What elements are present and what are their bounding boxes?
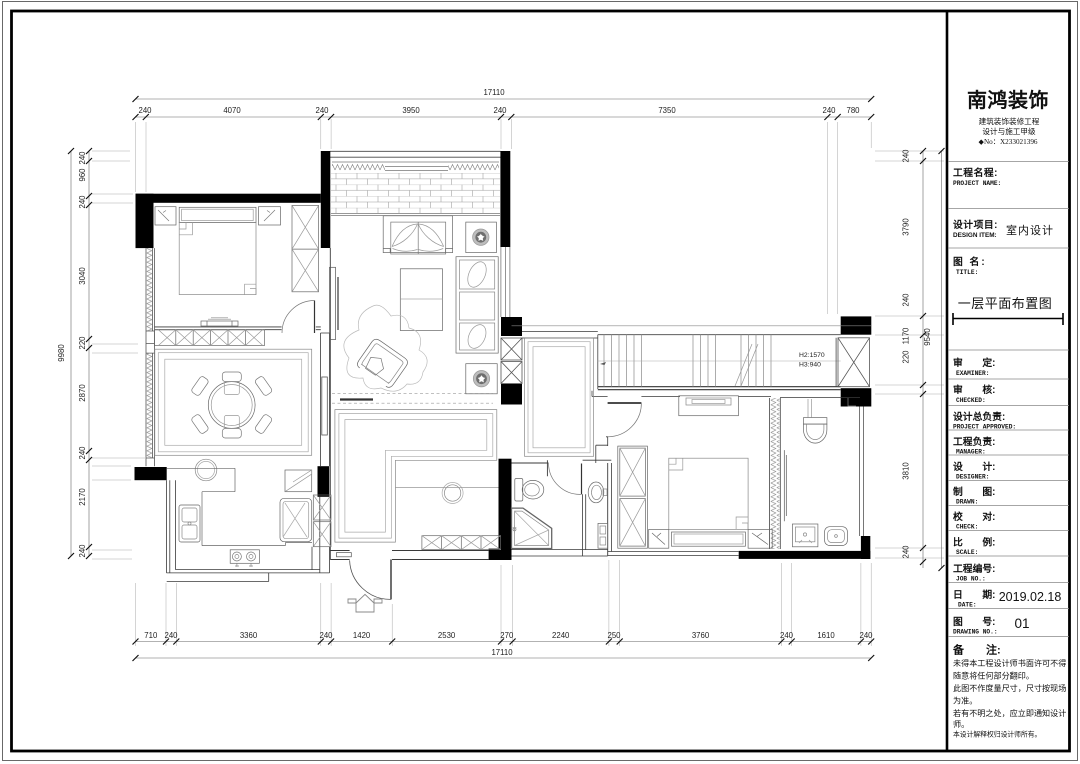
svg-text:220: 220: [902, 350, 911, 364]
svg-text:17110: 17110: [491, 648, 513, 657]
svg-text:240: 240: [315, 106, 329, 115]
svg-text:DRAWN:: DRAWN:: [956, 499, 978, 506]
svg-text:设计总负责:: 设计总负责:: [953, 410, 1005, 423]
svg-text:工程编号:: 工程编号:: [953, 562, 995, 575]
svg-text:9540: 9540: [923, 328, 932, 346]
svg-text:图 名:: 图 名:: [953, 255, 987, 268]
svg-text:3040: 3040: [78, 267, 87, 285]
svg-text:240: 240: [319, 631, 333, 640]
svg-text:240: 240: [78, 151, 87, 165]
svg-text:4070: 4070: [223, 106, 241, 115]
svg-text:240: 240: [78, 195, 87, 209]
svg-text:若有不明之处，应立即通知设计: 若有不明之处，应立即通知设计: [953, 708, 1066, 718]
svg-text:PROJECT NAME:: PROJECT NAME:: [953, 180, 1001, 187]
svg-text:240: 240: [780, 631, 794, 640]
svg-text:2530: 2530: [438, 631, 456, 640]
svg-text:校 对:: 校 对:: [953, 510, 995, 523]
svg-text:制 图:: 制 图:: [953, 485, 995, 498]
svg-text:DRAWING NO.:: DRAWING NO.:: [953, 629, 998, 636]
svg-text:2240: 2240: [552, 631, 570, 640]
svg-text:SCALE:: SCALE:: [956, 549, 978, 556]
svg-text:240: 240: [902, 545, 911, 559]
svg-text:MANAGER:: MANAGER:: [956, 449, 986, 456]
svg-text:DESIGN ITEM:: DESIGN ITEM:: [953, 232, 997, 239]
svg-text:DATE:: DATE:: [958, 602, 977, 609]
svg-text:3810: 3810: [902, 462, 911, 480]
svg-text:240: 240: [859, 631, 873, 640]
svg-text:960: 960: [78, 168, 87, 182]
svg-text:3360: 3360: [240, 631, 258, 640]
svg-text:1610: 1610: [817, 631, 835, 640]
svg-text:CHECK:: CHECK:: [956, 524, 978, 531]
svg-text:1170: 1170: [902, 327, 911, 344]
svg-text:备 注:: 备 注:: [952, 643, 1001, 657]
svg-text:2870: 2870: [78, 384, 87, 402]
svg-text:270: 270: [500, 631, 514, 640]
svg-text:◆No：X233021396: ◆No：X233021396: [978, 138, 1037, 146]
svg-text:未得本工程设计师书面许可不得: 未得本工程设计师书面许可不得: [953, 658, 1066, 668]
svg-text:南鸿装饰: 南鸿装饰: [967, 88, 1049, 112]
svg-text:780: 780: [846, 106, 860, 115]
svg-text:220: 220: [78, 336, 87, 350]
svg-text:240: 240: [78, 544, 87, 558]
svg-text:1420: 1420: [353, 631, 371, 640]
svg-text:一层平面布置图: 一层平面布置图: [958, 296, 1053, 311]
svg-text:建筑装饰装修工程: 建筑装饰装修工程: [979, 116, 1040, 126]
svg-text:240: 240: [138, 106, 152, 115]
svg-text:设 计:: 设 计:: [953, 460, 995, 473]
svg-text:2170: 2170: [78, 488, 87, 506]
svg-text:图 号:: 图 号:: [953, 616, 995, 628]
svg-text:设计项目:: 设计项目:: [953, 218, 998, 231]
svg-text:17110: 17110: [483, 88, 505, 97]
svg-text:JOB NO.:: JOB NO.:: [956, 576, 986, 583]
svg-text:240: 240: [822, 106, 836, 115]
svg-text:工程负责:: 工程负责:: [953, 435, 995, 448]
svg-text:3950: 3950: [402, 106, 420, 115]
svg-text:为准。: 为准。: [953, 696, 977, 706]
svg-text:TITLE:: TITLE:: [956, 269, 978, 276]
svg-text:CHECKED:: CHECKED:: [956, 397, 986, 404]
svg-text:DESIGNER:: DESIGNER:: [956, 474, 989, 481]
svg-text:3790: 3790: [902, 218, 911, 236]
svg-text:7350: 7350: [658, 106, 676, 115]
svg-text:250: 250: [607, 631, 621, 640]
svg-text:240: 240: [78, 446, 87, 460]
svg-text:比 例:: 比 例:: [953, 536, 995, 549]
svg-text:PROJECT APPROVED:: PROJECT APPROVED:: [953, 424, 1016, 431]
svg-text:H2:1570: H2:1570: [799, 352, 825, 359]
svg-text:室内设计: 室内设计: [1006, 223, 1054, 237]
svg-text:01: 01: [1014, 616, 1029, 631]
svg-text:审 核:: 审 核:: [953, 383, 995, 396]
svg-text:工程名程:: 工程名程:: [953, 166, 998, 179]
svg-text:本设计解释权归设计师所有。: 本设计解释权归设计师所有。: [953, 730, 1041, 739]
svg-text:H3:940: H3:940: [799, 362, 821, 369]
svg-text:9980: 9980: [57, 344, 66, 362]
svg-text:随意将任何部分翻印。: 随意将任何部分翻印。: [953, 671, 1034, 681]
svg-text:710: 710: [144, 631, 158, 640]
svg-text:EXAMINER:: EXAMINER:: [956, 370, 989, 377]
svg-text:审 定:: 审 定:: [953, 356, 995, 369]
svg-text:日 期:: 日 期:: [953, 588, 995, 601]
svg-text:此图不作度量尺寸，尺寸按现场: 此图不作度量尺寸，尺寸按现场: [953, 683, 1066, 693]
svg-text:240: 240: [902, 149, 911, 163]
svg-text:设计与施工甲级: 设计与施工甲级: [982, 126, 1036, 136]
svg-text:2019.02.18: 2019.02.18: [999, 590, 1062, 604]
svg-text:240: 240: [493, 106, 507, 115]
svg-text:240: 240: [164, 631, 178, 640]
svg-text:240: 240: [902, 293, 911, 307]
svg-text:3760: 3760: [692, 631, 710, 640]
svg-text:师。: 师。: [953, 719, 969, 729]
